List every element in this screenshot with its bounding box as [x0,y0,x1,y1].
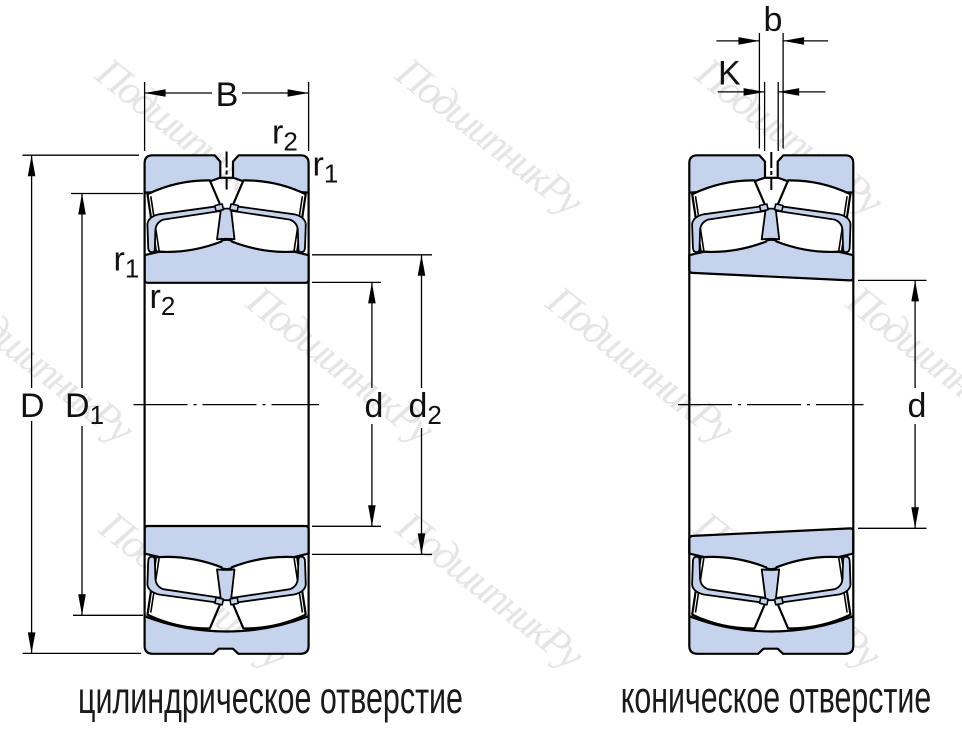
svg-text:r2: r2 [272,114,298,157]
svg-text:d2: d2 [409,387,442,430]
svg-text:r2: r2 [150,278,176,321]
svg-text:r1: r1 [313,146,339,189]
svg-text:b: b [764,1,783,39]
svg-text:ПодшипникРу: ПодшипникРу [537,277,743,454]
svg-text:d: d [908,387,927,425]
svg-text:D: D [20,387,45,425]
svg-text:коническое отверстие: коническое отверстие [621,672,932,723]
svg-text:r1: r1 [114,241,140,284]
svg-text:ПодшипникРу: ПодшипникРу [0,277,143,454]
svg-text:d: d [365,387,384,425]
svg-text:цилиндрическое отверстие: цилиндрическое отверстие [78,672,463,723]
svg-text:B: B [216,76,239,114]
svg-text:ПодшипникРу: ПодшипникРу [387,503,593,680]
svg-text:ПодшипникРу: ПодшипникРу [237,277,443,454]
svg-text:ПодшипникРу: ПодшипникРу [837,277,962,454]
svg-text:K: K [718,55,741,93]
svg-text:ПодшипникРу: ПодшипникРу [386,49,592,226]
